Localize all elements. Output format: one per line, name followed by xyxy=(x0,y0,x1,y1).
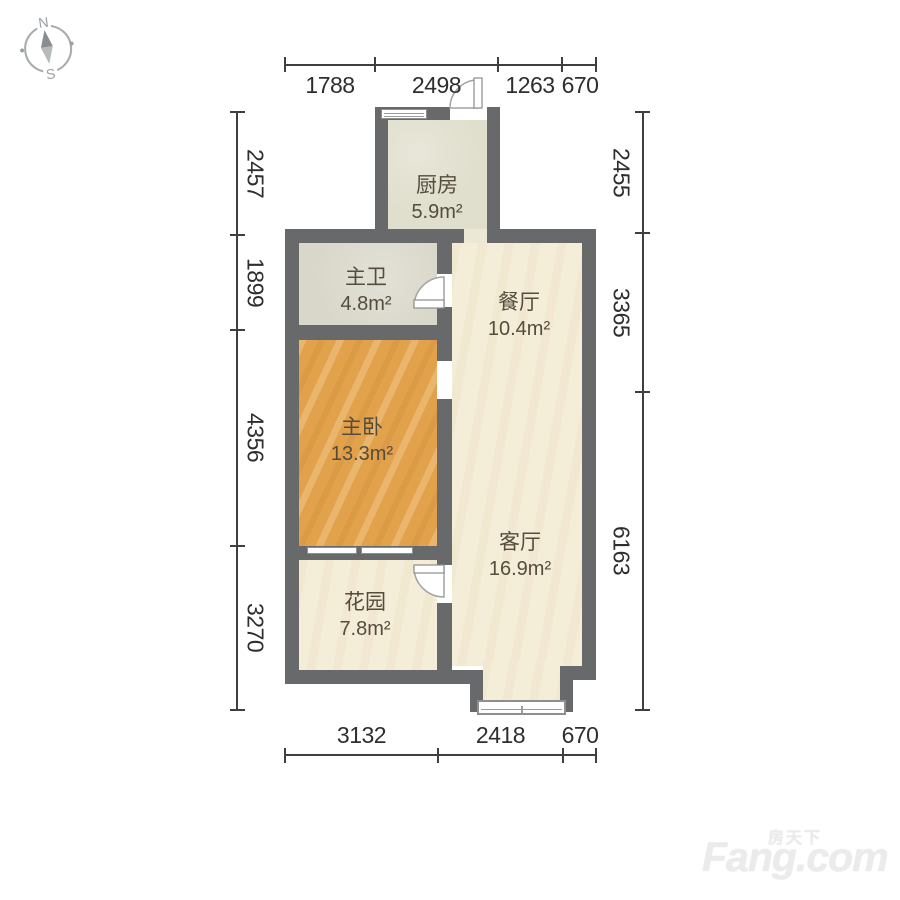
living-label: 客厅 16.9m² xyxy=(460,529,580,582)
bathroom-name: 主卫 xyxy=(306,264,426,291)
garden-bottom-wall xyxy=(285,670,483,684)
kitchen-dining-opening xyxy=(464,229,487,243)
bedroom-garden-window-2 xyxy=(361,547,413,554)
compass-needle-north xyxy=(39,29,53,48)
bay-floor xyxy=(483,660,560,700)
dining-area: 10.4m² xyxy=(459,316,579,342)
living-name: 客厅 xyxy=(460,529,580,556)
dim-left-2: 1899 xyxy=(242,235,268,330)
dim-top-1: 1788 xyxy=(285,72,375,99)
dim-top-2: 2498 xyxy=(375,72,498,99)
main-top-wall xyxy=(285,229,596,243)
left-outer-wall xyxy=(285,229,299,684)
top-dimension-line xyxy=(285,64,596,66)
dim-bottom-3: 670 xyxy=(558,722,602,749)
dining-name: 餐厅 xyxy=(459,289,579,316)
bedroom-area: 13.3m² xyxy=(302,441,422,467)
dim-left-1: 2457 xyxy=(242,112,268,235)
compass-icon: N S xyxy=(14,10,81,85)
left-dimension-line xyxy=(236,112,238,710)
kitchen-area: 5.9m² xyxy=(377,199,497,225)
dim-top-4: 670 xyxy=(558,72,602,99)
bottom-dimension-line xyxy=(285,754,597,756)
bedroom-name: 主卧 xyxy=(302,414,422,441)
dim-top-3: 1263 xyxy=(498,72,562,99)
living-area: 16.9m² xyxy=(460,556,580,582)
bathroom-label: 主卫 4.8m² xyxy=(306,264,426,317)
bedroom-label: 主卧 13.3m² xyxy=(302,414,422,467)
dining-label: 餐厅 10.4m² xyxy=(459,289,579,342)
bedroom-door-opening xyxy=(437,361,452,399)
right-outer-wall xyxy=(582,229,596,666)
garden-area: 7.8m² xyxy=(305,616,425,642)
bathroom-bedroom-wall xyxy=(299,325,452,340)
compass-dot-east xyxy=(69,41,74,46)
dim-left-3: 4356 xyxy=(242,330,268,546)
fang-watermark-en: Fang.com xyxy=(702,834,888,881)
bay-window xyxy=(477,700,566,715)
kitchen-name: 厨房 xyxy=(377,172,497,199)
floor-plan: N S xyxy=(0,0,900,900)
bedroom-garden-window-1 xyxy=(307,547,357,554)
dim-bottom-1: 3132 xyxy=(285,722,438,749)
dim-right-1: 2455 xyxy=(608,112,634,233)
kitchen-window xyxy=(381,109,427,119)
kitchen-label: 厨房 5.9m² xyxy=(377,172,497,225)
right-dimension-line xyxy=(642,112,644,710)
fang-watermark: 房天下 Fang.com xyxy=(702,824,898,888)
dim-right-3: 6163 xyxy=(608,392,634,710)
dim-right-2: 3365 xyxy=(608,233,634,392)
dim-bottom-2: 2418 xyxy=(438,722,563,749)
garden-name: 花园 xyxy=(305,589,425,616)
bathroom-area: 4.8m² xyxy=(306,291,426,317)
dim-left-4: 3270 xyxy=(242,546,268,710)
garden-label: 花园 7.8m² xyxy=(305,589,425,642)
compass-needle-south xyxy=(41,46,55,65)
